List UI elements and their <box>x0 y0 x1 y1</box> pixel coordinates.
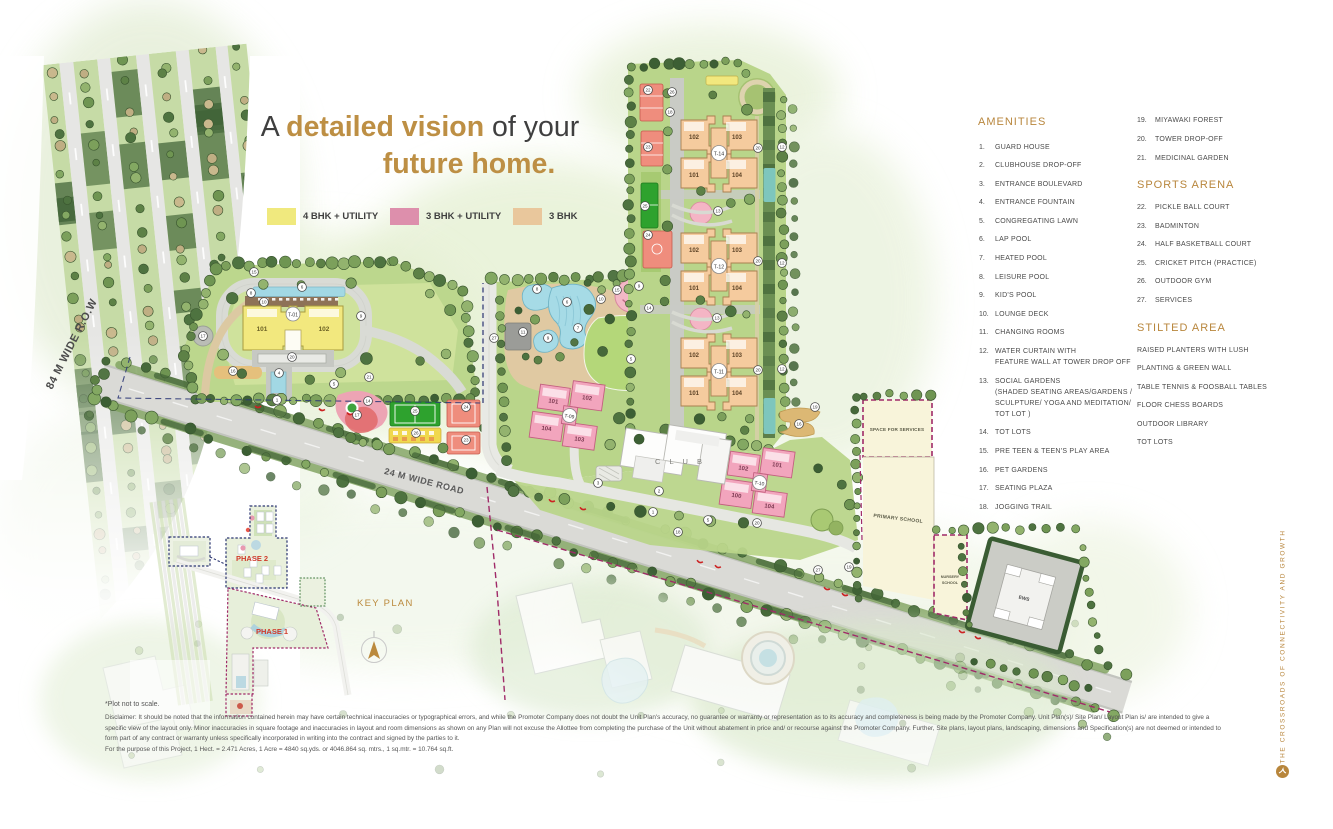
svg-text:1: 1 <box>652 510 655 515</box>
svg-text:2: 2 <box>658 489 661 494</box>
svg-text:T-01: T-01 <box>288 313 298 319</box>
svg-text:102: 102 <box>689 135 700 141</box>
svg-text:103: 103 <box>732 135 743 141</box>
svg-text:14: 14 <box>365 399 371 404</box>
svg-text:20: 20 <box>754 521 760 526</box>
svg-text:20: 20 <box>755 368 761 373</box>
svg-text:26: 26 <box>669 90 675 95</box>
svg-text:20: 20 <box>755 259 761 264</box>
svg-text:4: 4 <box>278 371 281 376</box>
svg-text:9: 9 <box>638 284 641 289</box>
svg-text:C L U B: C L U B <box>655 457 705 466</box>
svg-text:SPACE FOR SERVICES: SPACE FOR SERVICES <box>870 427 924 432</box>
svg-text:14: 14 <box>646 306 652 311</box>
svg-text:5: 5 <box>707 518 710 523</box>
svg-text:25: 25 <box>412 409 418 414</box>
svg-text:T-12: T-12 <box>714 265 724 271</box>
svg-text:26: 26 <box>413 431 419 436</box>
svg-text:22: 22 <box>645 88 651 93</box>
svg-text:18: 18 <box>667 110 673 115</box>
svg-text:10: 10 <box>261 300 267 305</box>
svg-text:103: 103 <box>732 353 743 359</box>
svg-text:15: 15 <box>614 288 620 293</box>
svg-text:1: 1 <box>276 398 279 403</box>
svg-text:101: 101 <box>689 286 700 292</box>
svg-text:6: 6 <box>301 285 304 290</box>
svg-text:6: 6 <box>566 300 569 305</box>
svg-text:27: 27 <box>491 336 497 341</box>
svg-text:17: 17 <box>354 413 360 418</box>
svg-text:16: 16 <box>796 422 802 427</box>
svg-text:5: 5 <box>333 382 336 387</box>
svg-text:16: 16 <box>230 369 236 374</box>
svg-text:19: 19 <box>812 405 818 410</box>
svg-text:27: 27 <box>815 568 821 573</box>
svg-text:23: 23 <box>463 438 469 443</box>
svg-text:102: 102 <box>319 326 330 333</box>
svg-text:24: 24 <box>463 405 469 410</box>
svg-text:19: 19 <box>846 565 852 570</box>
svg-text:104: 104 <box>732 391 743 397</box>
svg-text:7: 7 <box>577 326 580 331</box>
svg-text:25: 25 <box>642 204 648 209</box>
svg-text:3: 3 <box>597 481 600 486</box>
svg-text:8: 8 <box>536 287 539 292</box>
svg-text:KEY PLAN: KEY PLAN <box>357 598 414 609</box>
svg-text:17: 17 <box>200 334 206 339</box>
svg-text:24: 24 <box>645 233 651 238</box>
svg-text:104: 104 <box>732 286 743 292</box>
svg-text:12: 12 <box>779 145 785 150</box>
svg-text:21: 21 <box>366 375 372 380</box>
svg-text:103: 103 <box>732 248 743 254</box>
svg-text:12: 12 <box>779 261 785 266</box>
svg-text:NURSERY: NURSERY <box>941 575 960 579</box>
svg-text:9: 9 <box>360 314 363 319</box>
svg-text:101: 101 <box>689 391 700 397</box>
svg-text:T-11: T-11 <box>714 370 724 376</box>
svg-text:8: 8 <box>250 291 253 296</box>
svg-text:102: 102 <box>689 248 700 254</box>
svg-text:10: 10 <box>598 297 604 302</box>
svg-text:101: 101 <box>257 326 268 333</box>
svg-text:T-14: T-14 <box>714 152 724 158</box>
svg-text:104: 104 <box>732 173 743 179</box>
svg-text:20: 20 <box>289 355 295 360</box>
svg-text:12: 12 <box>779 367 785 372</box>
svg-text:PHASE 2: PHASE 2 <box>236 554 268 563</box>
svg-text:18: 18 <box>675 530 681 535</box>
svg-text:9: 9 <box>547 336 550 341</box>
svg-text:102: 102 <box>689 353 700 359</box>
svg-text:20: 20 <box>755 146 761 151</box>
svg-text:SCHOOL: SCHOOL <box>942 581 959 585</box>
svg-text:13: 13 <box>715 209 721 214</box>
svg-text:PHASE 1: PHASE 1 <box>256 627 288 636</box>
svg-text:15: 15 <box>251 270 257 275</box>
svg-text:11: 11 <box>521 330 526 335</box>
svg-text:13: 13 <box>714 316 720 321</box>
svg-text:5: 5 <box>630 357 633 362</box>
